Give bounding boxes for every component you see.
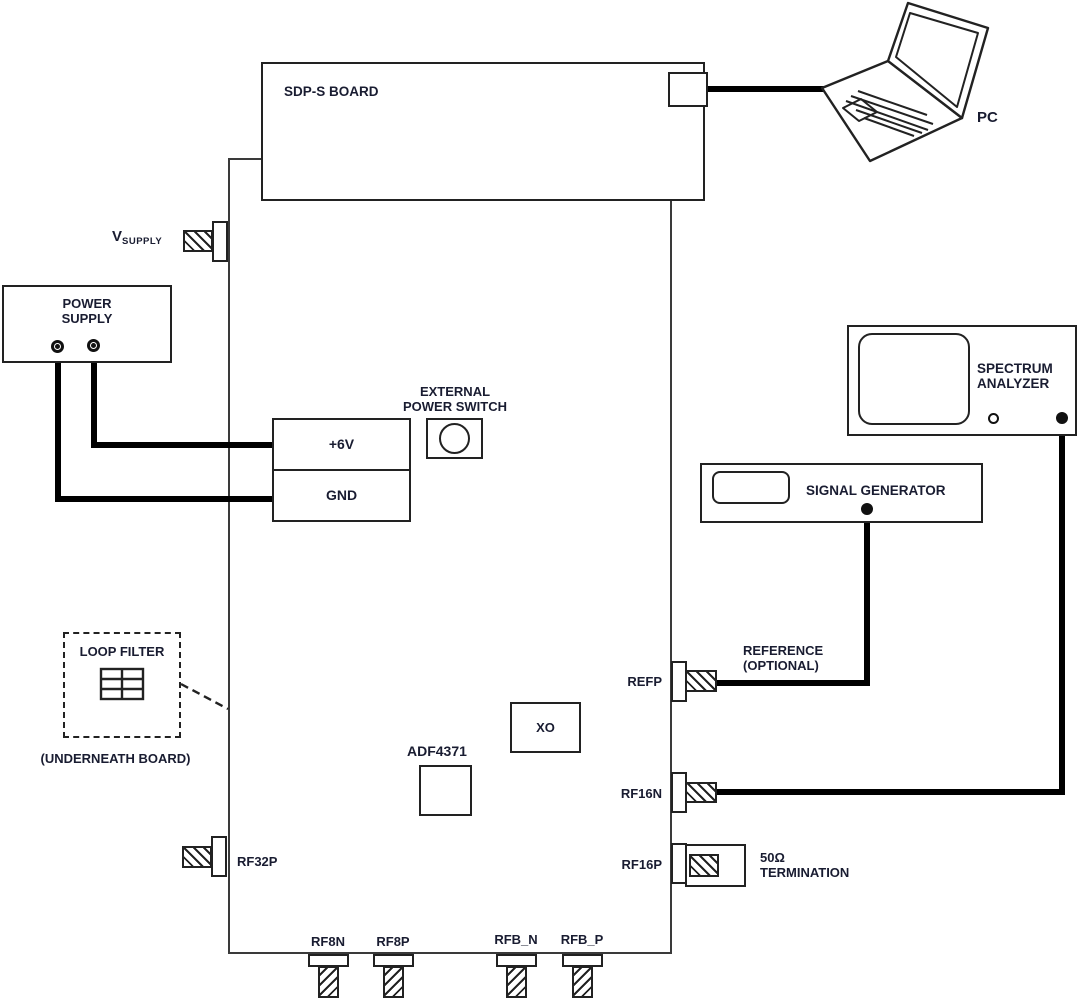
vsupply-connector-body <box>212 221 228 262</box>
laptop-touchpad <box>843 99 877 121</box>
external-power-switch-label: EXTERNAL POWER SWITCH <box>395 384 515 414</box>
rf8p-connector-stub <box>383 966 404 998</box>
rfb-n-connector-stub <box>506 966 527 998</box>
signal-generator-output <box>861 503 873 515</box>
spectrum-analyzer-screen <box>858 333 970 425</box>
cable-spectrum-vertical <box>1059 422 1065 795</box>
cable-siggen-horizontal <box>716 680 870 686</box>
signal-generator-label: SIGNAL GENERATOR <box>806 483 946 498</box>
cable-gnd-horizontal <box>55 496 274 502</box>
power-supply-terminal-negative <box>87 339 100 352</box>
rf16n-connector-hatch <box>685 782 717 803</box>
pc-label: PC <box>977 110 998 125</box>
rf16n-label: RF16N <box>600 786 662 801</box>
rf32p-label: RF32P <box>237 854 277 869</box>
cable-spectrum-horizontal <box>716 789 1065 795</box>
terminal-6v-label: +6V <box>272 437 411 452</box>
pc-laptop-icon <box>822 3 988 161</box>
terminal-gnd-label: GND <box>272 488 411 503</box>
loop-filter-note: (UNDERNEATH BOARD) <box>18 751 213 766</box>
external-power-switch-button <box>439 423 470 454</box>
cable-6v-horizontal <box>91 442 274 448</box>
sdp-s-board <box>261 62 705 201</box>
vsupply-label-main: V <box>112 228 122 245</box>
loop-filter-leader-line <box>181 684 228 709</box>
rfb-p-label: RFB_P <box>542 932 622 947</box>
rf32p-connector-body <box>211 836 227 877</box>
usb-connector-box <box>668 72 708 107</box>
refp-label: REFP <box>600 674 662 689</box>
vsupply-connector-hatch <box>183 230 213 252</box>
cable-usb-to-pc <box>707 86 835 92</box>
rf16p-connector-hatch <box>689 854 719 877</box>
cable-6v-vertical <box>91 350 97 448</box>
adf4371-label: ADF4371 <box>407 744 467 759</box>
cable-siggen-vertical <box>864 511 870 686</box>
block-diagram-canvas: SDP-S BOARD VSUPPLY POWER SUPPLY +6V GND… <box>0 0 1080 1002</box>
termination-label: 50Ω TERMINATION <box>760 850 849 880</box>
laptop-keyboard-lines <box>846 91 933 136</box>
rfb-p-connector-stub <box>572 966 593 998</box>
cable-gnd-vertical <box>55 350 61 502</box>
power-supply-label: POWER SUPPLY <box>2 296 172 326</box>
refp-connector-hatch <box>685 670 717 692</box>
adf4371-chip <box>419 765 472 816</box>
signal-generator-display <box>712 471 790 504</box>
spectrum-analyzer-label: SPECTRUM ANALYZER <box>977 361 1053 391</box>
sdp-s-board-label: SDP-S BOARD <box>284 84 379 99</box>
spectrum-analyzer-knob <box>988 413 999 424</box>
eval-board-outline <box>228 158 672 954</box>
rf16p-label: RF16P <box>600 857 662 872</box>
loop-filter-label: LOOP FILTER <box>63 644 181 659</box>
reference-optional-label: REFERENCE (OPTIONAL) <box>743 643 823 673</box>
rf8n-connector-stub <box>318 966 339 998</box>
rf32p-connector-hatch <box>182 846 212 868</box>
vsupply-label: VSUPPLY <box>112 229 162 249</box>
xo-label: XO <box>510 720 581 735</box>
vsupply-label-sub: SUPPLY <box>122 236 162 247</box>
power-supply-terminal-positive <box>51 340 64 353</box>
rf8p-label: RF8P <box>353 934 433 949</box>
spectrum-analyzer-rf-input <box>1056 412 1068 424</box>
